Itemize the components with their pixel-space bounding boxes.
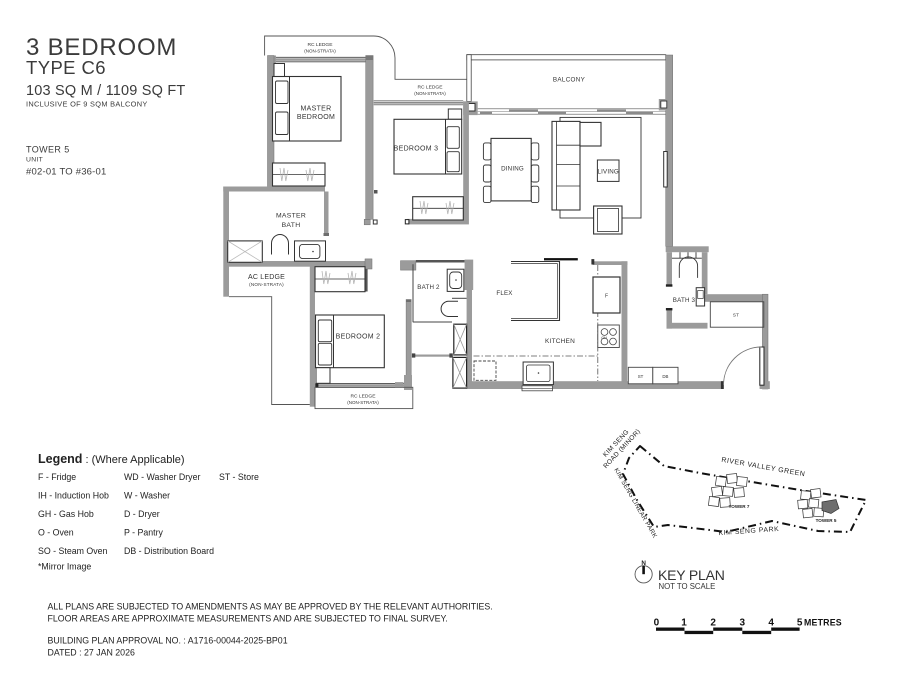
svg-text:SO - Steam Oven: SO - Steam Oven: [38, 546, 108, 556]
svg-text:BEDROOM 3: BEDROOM 3: [394, 146, 439, 153]
svg-text:P - Pantry: P - Pantry: [124, 528, 164, 538]
svg-text:ST: ST: [638, 374, 644, 379]
svg-text:DB: DB: [662, 374, 668, 379]
svg-text:1: 1: [681, 618, 687, 629]
svg-text:BEDROOM 2: BEDROOM 2: [336, 334, 381, 341]
svg-text:DB - Distribution Board: DB - Distribution Board: [124, 546, 214, 556]
svg-text:KEY PLAN: KEY PLAN: [658, 567, 725, 583]
svg-text:N: N: [641, 560, 646, 567]
svg-text:#02-01 TO #36-01: #02-01 TO #36-01: [26, 167, 107, 178]
svg-text:O - Oven: O - Oven: [38, 528, 74, 538]
svg-text:TOWER 5: TOWER 5: [26, 145, 70, 155]
svg-text:ST: ST: [733, 313, 739, 318]
svg-text:2: 2: [710, 618, 716, 629]
svg-text:INCLUSIVE OF 9 SQM BALCONY: INCLUSIVE OF 9 SQM BALCONY: [26, 100, 148, 109]
svg-text:D - Dryer: D - Dryer: [124, 509, 160, 519]
svg-text:BALCONY: BALCONY: [553, 77, 586, 84]
svg-text:(NON-STRATA): (NON-STRATA): [249, 282, 284, 287]
svg-text:BATH: BATH: [282, 222, 301, 229]
svg-text:0: 0: [654, 618, 660, 629]
svg-text:NOT TO SCALE: NOT TO SCALE: [659, 582, 716, 591]
svg-text:BUILDING PLAN APPROVAL NO. : A: BUILDING PLAN APPROVAL NO. : A1716-00044…: [48, 636, 288, 646]
svg-text:RC LEDGE: RC LEDGE: [307, 42, 333, 48]
svg-text:METRES: METRES: [804, 618, 842, 628]
svg-text:W - Washer: W - Washer: [124, 491, 170, 501]
svg-text:MASTER: MASTER: [276, 213, 306, 220]
svg-text:TOWER 7: TOWER 7: [729, 504, 750, 509]
svg-text:KIM SENG PARK: KIM SENG PARK: [718, 526, 779, 537]
svg-text:GH: GH: [601, 336, 607, 340]
svg-text:GH - Gas Hob: GH - Gas Hob: [38, 509, 94, 519]
svg-text:FLOOR AREAS ARE APPROXIMATE ME: FLOOR AREAS ARE APPROXIMATE MEASUREMENTS…: [48, 614, 448, 624]
svg-text:UNIT: UNIT: [26, 157, 43, 164]
svg-text:ST - Store: ST - Store: [219, 472, 259, 482]
svg-text:RC LEDGE: RC LEDGE: [417, 85, 443, 91]
svg-text:*Mirror Image: *Mirror Image: [38, 562, 91, 572]
svg-text:103 SQ M / 1109 SQ FT: 103 SQ M / 1109 SQ FT: [26, 83, 185, 99]
svg-text:4: 4: [768, 618, 774, 629]
svg-text:MASTER: MASTER: [301, 106, 332, 113]
svg-text:(NON-STRATA): (NON-STRATA): [304, 49, 336, 54]
svg-text:DINING: DINING: [501, 166, 524, 173]
svg-text:TYPE C6: TYPE C6: [26, 57, 106, 78]
svg-text:LIVING: LIVING: [597, 169, 619, 176]
svg-text:BATH 2: BATH 2: [417, 284, 440, 291]
svg-text:5: 5: [797, 618, 803, 629]
svg-text:ALL PLANS ARE SUBJECTED TO AME: ALL PLANS ARE SUBJECTED TO AMENDMENTS AS…: [48, 602, 493, 612]
svg-text:F: F: [605, 294, 608, 300]
svg-text:(NON-STRATA): (NON-STRATA): [347, 400, 379, 405]
svg-text:TOWER 5: TOWER 5: [816, 518, 837, 523]
svg-text:BEDROOM: BEDROOM: [297, 114, 335, 121]
svg-text:WD - Washer Dryer: WD - Washer Dryer: [124, 472, 200, 482]
svg-text:F - Fridge: F - Fridge: [38, 472, 76, 482]
svg-text:BATH 3: BATH 3: [673, 297, 696, 304]
svg-text:AC LEDGE: AC LEDGE: [248, 274, 285, 281]
svg-text:KITCHEN: KITCHEN: [545, 338, 575, 345]
svg-text:KIM SENG LINEAR PARK: KIM SENG LINEAR PARK: [612, 467, 658, 540]
svg-text:RC LEDGE: RC LEDGE: [350, 394, 376, 400]
svg-text:3: 3: [740, 618, 746, 629]
svg-text:FLEX: FLEX: [496, 290, 512, 297]
svg-text:(NON-STRATA): (NON-STRATA): [414, 91, 446, 96]
svg-text:IH - Induction Hob: IH - Induction Hob: [38, 491, 109, 501]
svg-text:DATED : 27 JAN 2026: DATED : 27 JAN 2026: [48, 648, 135, 658]
svg-text:Legend : (Where Applicable): Legend : (Where Applicable): [38, 452, 185, 466]
